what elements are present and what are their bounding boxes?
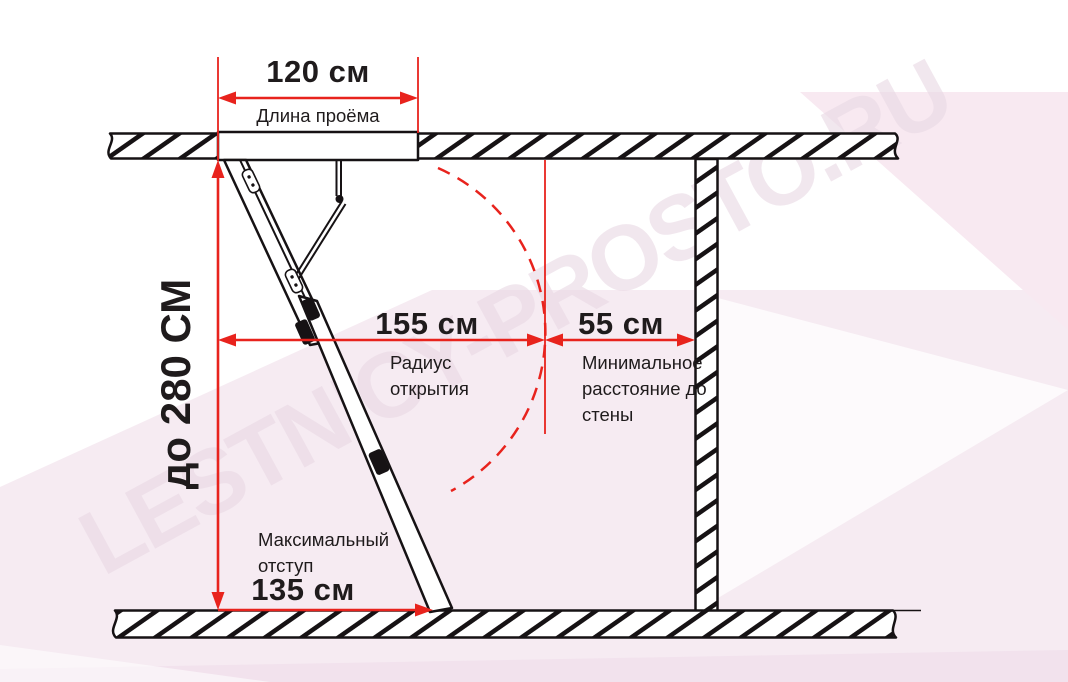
ceiling-height-value: до 280 СМ <box>152 279 200 490</box>
opening-length-value: 120 см <box>266 54 370 90</box>
opening-length-label: Длина проёма <box>256 103 379 129</box>
floor-slab <box>113 611 921 638</box>
opening-radius-value: 155 см <box>375 306 479 342</box>
ladder-strut <box>295 160 346 279</box>
opening-radius-label: Радиус открытия <box>390 350 495 402</box>
max-offset-value: 135 см <box>251 572 355 608</box>
ceiling-slab <box>108 132 898 160</box>
wall-distance-value: 55 см <box>578 306 664 342</box>
attic-ladder-dimensions-diagram: LESTNICY-PROSTO.RU <box>0 0 1068 682</box>
ceiling-opening <box>218 132 418 160</box>
wall-distance-label: Минимальное расстояние до стены <box>582 350 722 428</box>
